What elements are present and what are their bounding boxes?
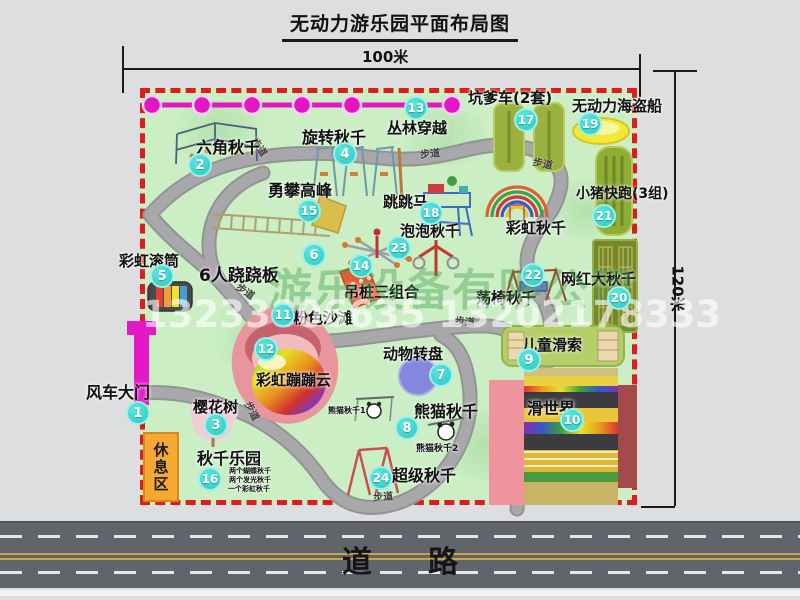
- page-title: 无动力游乐园平面布局图: [0, 9, 800, 42]
- panda-swing-2-label: 熊猫秋千2: [416, 441, 458, 454]
- attraction-20-badge: 20: [607, 286, 631, 310]
- phone-watermark: 13233806635 13202178333: [142, 293, 721, 336]
- attraction-6-label: 6人跷跷板: [199, 261, 279, 286]
- attraction-4-badge: 4: [333, 142, 357, 166]
- attraction-1-label: 风车大门: [86, 379, 150, 403]
- width-dimension-label: 100米: [362, 46, 408, 67]
- attraction-18-badge: 18: [419, 201, 443, 225]
- swing-park-note-3: 一个彩虹秋千: [228, 484, 270, 494]
- attraction-7-badge: 7: [429, 363, 453, 387]
- attraction-10-badge: 10: [560, 408, 584, 432]
- attraction-2-badge: 2: [188, 153, 212, 177]
- attraction-14-badge: 14: [349, 254, 373, 278]
- slide-world-block: [489, 368, 637, 505]
- attraction-15-label: 勇攀高峰: [268, 177, 332, 201]
- road-label: 道路: [0, 537, 800, 581]
- attraction-15-badge: 15: [297, 199, 321, 223]
- attraction-1-badge: 1: [126, 401, 150, 425]
- attraction-22-badge: 22: [521, 263, 545, 287]
- slide-world-maroon-band: [618, 385, 637, 488]
- attraction-8-badge: 8: [395, 416, 419, 440]
- walkway-label: 步道: [419, 144, 440, 161]
- attraction-3-badge: 3: [204, 413, 228, 437]
- attraction-5-badge: 5: [150, 264, 174, 288]
- park-layout-screenshot: 无动力游乐园平面布局图 100米 120米: [0, 0, 800, 600]
- attraction-6-badge: 6: [302, 243, 326, 267]
- attraction-11-badge: 11: [271, 303, 295, 327]
- bottom-margin: [0, 590, 800, 596]
- attraction-17-badge: 17: [514, 108, 538, 132]
- attraction-9-badge: 9: [517, 348, 541, 372]
- road: 道路: [0, 521, 800, 588]
- attraction-23-badge: 23: [387, 236, 411, 260]
- rainbow-swing-label: 彩虹秋千: [506, 217, 566, 238]
- attraction-7-label: 动物转盘: [383, 343, 443, 364]
- panda-swing-1-label: 熊猫秋千1: [328, 405, 366, 416]
- slide-world-pink-band: [489, 380, 524, 505]
- attraction-13-badge: 13: [404, 96, 428, 120]
- attraction-17-label: 坑爹车(2套): [468, 87, 552, 108]
- attraction-13-label: 丛林穿越: [387, 117, 447, 138]
- attraction-12-label: 彩虹蹦蹦云: [256, 369, 331, 390]
- attraction-21-badge: 21: [592, 204, 616, 228]
- page-title-text: 无动力游乐园平面布局图: [282, 9, 518, 42]
- attraction-16-badge: 16: [198, 467, 222, 491]
- attraction-24-badge: 24: [369, 466, 393, 490]
- attraction-4-label: 旋转秋千: [302, 124, 366, 148]
- attraction-8-label: 熊猫秋千: [414, 398, 478, 422]
- attraction-12-badge: 12: [254, 337, 278, 361]
- attraction-19-badge: 19: [578, 112, 602, 136]
- slide-world-stripes: [524, 368, 618, 505]
- rest-area-box: 休息区: [143, 432, 179, 502]
- attraction-21-label: 小猪快跑(3组): [576, 183, 669, 203]
- attraction-24-label: 超级秋千: [392, 462, 456, 486]
- rest-area-label: 休息区: [151, 442, 172, 493]
